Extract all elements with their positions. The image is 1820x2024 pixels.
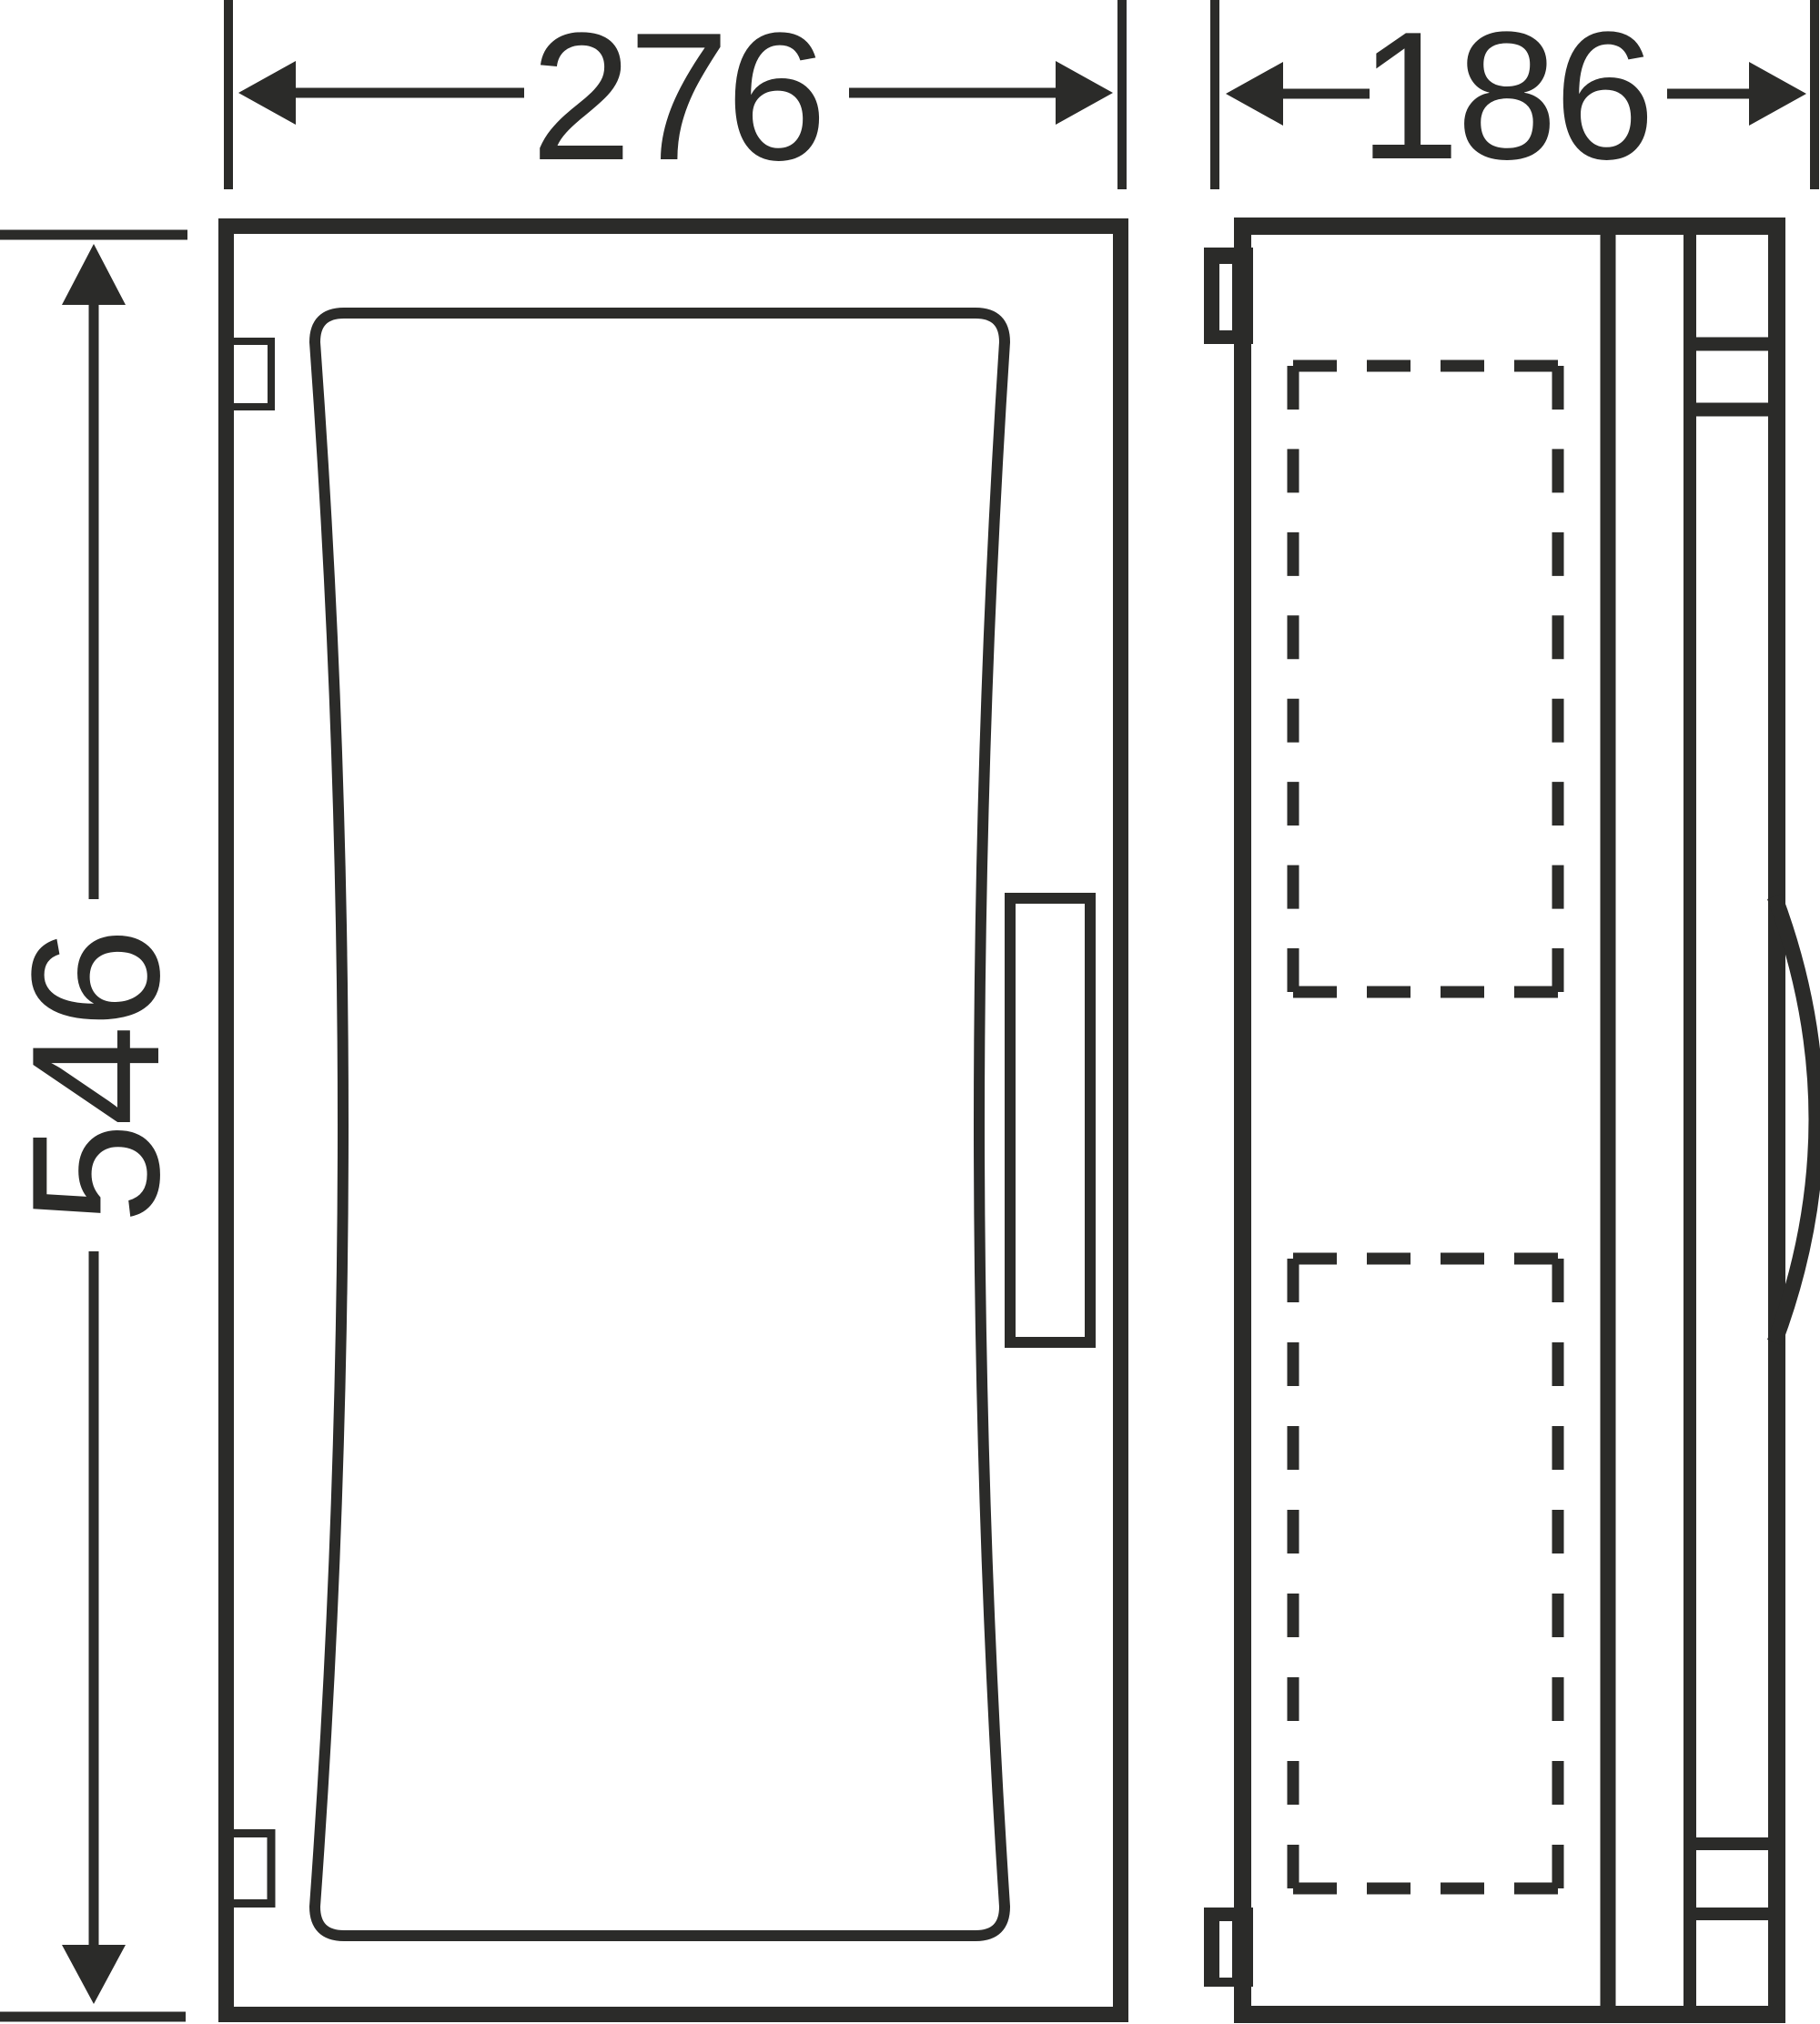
svg-text:186: 186	[1359, 0, 1652, 197]
svg-text:546: 546	[0, 931, 197, 1224]
svg-text:276: 276	[531, 0, 824, 198]
